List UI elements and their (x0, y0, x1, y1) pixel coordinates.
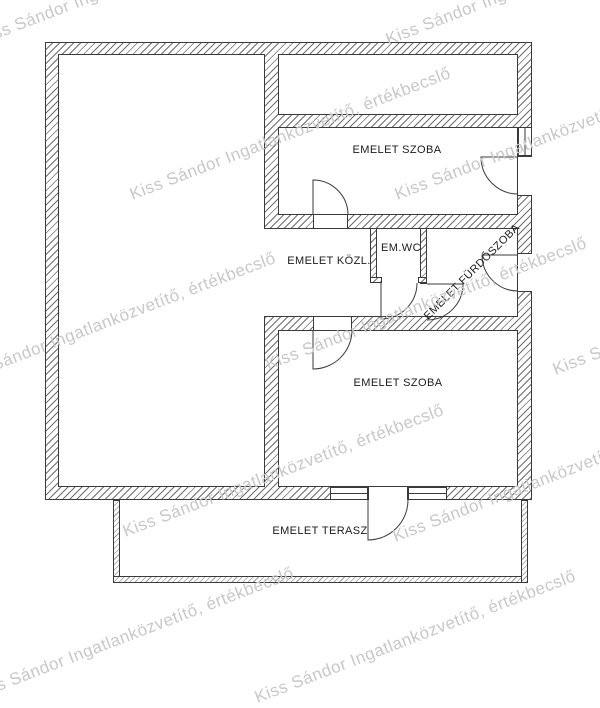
door-swing-upper-bedroom-right (481, 157, 518, 194)
wc-label: EM.WC (381, 242, 421, 254)
door-swing-wc (381, 283, 417, 319)
upper-bedroom-label: EMELET SZOBA (353, 144, 442, 156)
lower-bedroom-label: EMELET SZOBA (354, 377, 443, 389)
door-swing-lower-bedroom (313, 330, 352, 369)
hallway-label: EMELET KÖZL. (287, 255, 370, 267)
floor-plan: EMELET SZOBA EMELET KÖZL. EM.WC EMELET F… (0, 0, 600, 631)
door-swing-upper-bedroom (313, 180, 348, 215)
door-swing-terrace (368, 500, 408, 540)
terrace-label: EMELET TERASZ (272, 525, 367, 537)
